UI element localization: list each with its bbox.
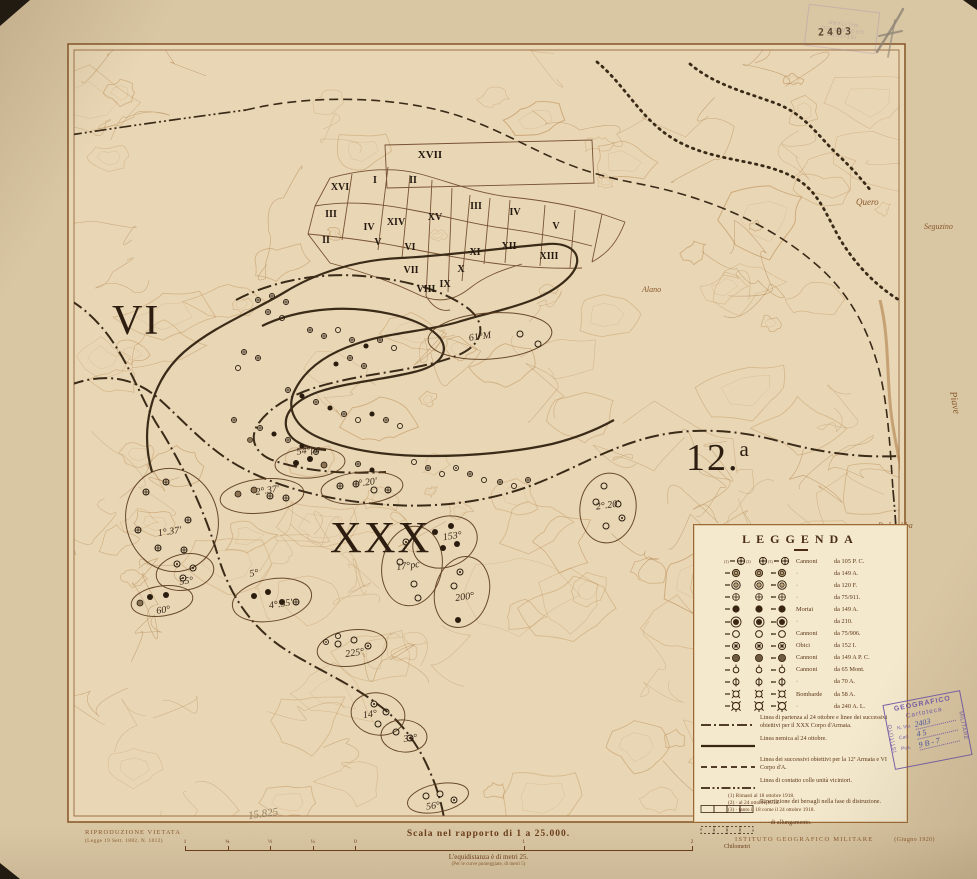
scale-tick [524,846,525,851]
battery-symbol-f [454,541,460,547]
sector-numeral: VIII [417,284,436,295]
battery-symbol-c [257,425,262,430]
battery-symbol-c [307,327,312,332]
weapon-name: Cannoni [796,558,834,565]
legend-symbol-bar [770,676,790,688]
battery-symbol-c [143,489,149,495]
legend-symbol-star [770,640,790,652]
scale-tick-label: 1 [522,839,525,845]
battery-symbol-g [247,437,252,442]
battery-symbol-c [347,355,352,360]
weapon-name: · [796,618,834,625]
legend-symbol-gray [724,652,744,664]
weapon-caliber: da 75/906. [834,630,861,637]
equidistance-note: L'equidistanza è di metri 25. [0,853,977,861]
scale-tick [692,846,693,851]
legend-symbol-open [724,628,744,640]
sector-numeral: IV [363,222,375,233]
battery-symbol-c [383,417,388,422]
battery-symbol-c [283,495,289,501]
sector-numeral: II [409,175,417,186]
legend-symbol-row: ·da 210. [694,615,907,627]
battery-symbol-c [337,483,343,489]
scale-tick [313,846,314,851]
legend-symbol-row: Cannonida 149 A P. C. [694,652,907,664]
map-sheet: 1°.37'55°60°4°.55'5°2°.37'54°pc1°.20'17°… [0,0,977,879]
battery-symbol-c [313,449,318,454]
legend-symbol-row: Mortaida 149 A. [694,603,907,615]
legend-footnote: (2) · al 24 ottobre 1918. [728,800,815,807]
legend-symbol-star [747,640,767,652]
place-name: Quero [856,197,879,207]
battery-symbol-f [369,411,374,416]
place-name: Alano [641,285,661,294]
legend-footnotes: (1) Rimasti al 18 ottobre 1918.(2) · al … [728,793,815,814]
weapon-caliber: da 70 A. [834,678,855,685]
legend-symbol-filledring [724,616,744,628]
equidistance-subnote: (Per le curve punteggiate, di metri 5) [0,862,977,867]
scan-corner-shadow [963,0,977,10]
weapon-name: · [796,703,834,710]
battery-symbol-f [147,594,153,600]
battery-symbol-c [269,293,274,298]
scan-corner-shadow [0,863,20,879]
sector-numeral: XV [428,212,443,223]
weapon-name: Mortai [796,606,834,613]
legend-symbol-filledring [747,616,767,628]
group-label: 56° [425,800,440,813]
weapon-name: · [796,582,834,589]
battery-symbol-f [363,343,368,348]
battery-symbol-c [155,545,161,551]
group-label: 60° [156,604,171,617]
legend-symbol-row: ·da 240 A. L. [694,700,907,712]
sector-numeral: XIV [387,217,406,228]
battery-symbol-c [265,309,270,314]
corps-label: XXX [330,513,431,562]
corps-label: VI [112,298,160,344]
publisher-name: ISTITUTO GEOGRAFICO MILITARE [735,836,873,843]
battery-symbol-c [285,387,290,392]
battery-symbol-f [163,592,169,598]
sector-numeral: XVI [331,182,349,193]
battery-symbol-c [241,349,246,354]
battery-symbol-c [255,355,260,360]
legend-symbol-filled [747,603,767,615]
legend-symbol-row: Cannonida 75/906. [694,628,907,640]
legend-line-rows: Linea di partenza al 24 ottobre e linee … [700,715,900,841]
legend-symbol-filled [724,603,744,615]
battery-symbol-f [369,467,374,472]
battery-symbol-c [377,337,382,342]
legend-symbol-shaded [770,567,790,579]
battery-symbol-g [235,491,241,497]
legend-symbol-bomblg [724,700,744,712]
legend-symbol-mont [770,664,790,676]
legend-footnote: (1) Rimasti al 18 ottobre 1918. [728,793,815,800]
weapon-name: · [796,678,834,685]
group-label: 5° [249,568,259,580]
battery-symbol-c [349,337,354,342]
scale-tick-label: ¾ [226,839,230,845]
legend-symbol-row: ·da 70 A. [694,676,907,688]
battery-symbol-c [231,417,236,422]
group-label: 14° [362,708,377,721]
legend-line-description: Linea nemica al 24 ottobre. [760,736,827,744]
legend-line-sample-solid [700,741,756,751]
inventory-number-stamp: 2403 [818,26,854,38]
legend-symbol-star [724,640,744,652]
weapon-caliber: da 75/911. [834,594,860,601]
legend-symbol-shaded [724,567,744,579]
legend-footnote: (3) · tanto il 18 come il 24 ottobre 191… [728,807,815,814]
battery-symbol-f [327,405,332,410]
weapon-caliber: da 149 A. [834,606,858,613]
legend-line-row: Linea nemica al 24 ottobre. [700,736,900,756]
place-name: Piave [947,390,962,416]
sector-numeral: XVII [418,149,442,161]
legend-symbol-row: Cannonida 65 Mont. [694,664,907,676]
scale-tick [185,846,186,851]
scale-tick-label: 2 [691,839,694,845]
battery-symbol-c [355,461,360,466]
legend-line-sample-dashdot [700,720,756,730]
battery-symbol-f [432,529,438,535]
sector-numeral: IX [439,279,451,290]
legend-line-sample-dashed [700,762,756,772]
sector-numeral: V [374,237,382,248]
group-label: 31° [402,732,418,745]
legend-symbol-cross105 [773,555,790,567]
sector-numeral: V [552,221,560,232]
scale-tick-label: 0 [354,839,357,845]
battery-symbol-f [299,443,304,448]
weapon-name: Cannoni [796,654,834,661]
weapon-caliber: da 149 A. [834,570,858,577]
weapon-name: Bombarde [796,691,834,698]
legend-title: LEGGENDA [694,532,907,547]
battery-symbol-c [497,479,502,484]
battery-symbol-f [299,393,304,398]
legend-line-row: Linea di partenza al 24 ottobre e linee … [700,715,900,735]
legend-symbol-bomblg [747,700,767,712]
scale-unit-label: Chilometri [724,844,750,850]
legend-line-description: Linea dei successivi obiettivi per la 12… [760,757,900,772]
scale-tick [270,846,271,851]
battery-symbol-f [271,431,276,436]
legend-symbol-row: ·da 120 F. [694,579,907,591]
battery-symbol-c [135,527,141,533]
battery-symbol-c [341,411,346,416]
scale-bar-line [185,850,692,851]
legend-symbol-plus [724,591,744,603]
battery-symbol-f [251,593,257,599]
battery-symbol-f [440,545,446,551]
scale-tick [355,846,356,851]
weapon-caliber: da 65 Mont. [834,666,865,673]
weapon-name: Cannoni [796,630,834,637]
battery-symbol-f [333,361,338,366]
battery-symbol-c [181,547,187,553]
battery-symbol-f [448,523,454,529]
sector-numeral: XII [501,241,516,252]
legend-symbol-plus [770,591,790,603]
battery-symbol-c [361,363,366,368]
publisher-imprint: ISTITUTO GEOGRAFICO MILITARE (Giugno 192… [735,836,935,843]
publisher-date: (Giugno 1920) [894,837,935,843]
sector-numeral: I [373,175,377,186]
legend-line-description: Linea di contatto colle unità viciniori. [760,778,852,786]
battery-symbol-c [425,465,430,470]
place-name: Seguzino [924,222,953,231]
battery-symbol-c [321,333,326,338]
legend-symbol-gray [770,652,790,664]
legend-symbol-row: ·da 75/911. [694,591,907,603]
scan-corner-shadow [0,0,30,26]
battery-symbol-f [307,456,313,462]
battery-symbol-g [137,600,143,606]
battery-symbol-c [283,299,288,304]
legend-symbol-bomb [747,688,767,700]
sector-numeral: XIII [540,251,559,262]
scale-tick-label: 1 [184,839,187,845]
sector-numeral: VI [404,242,415,253]
weapon-caliber: da 58 A. [834,691,855,698]
legend-symbol-double [747,579,767,591]
legend-symbol-row: ·da 149 A. [694,567,907,579]
weapon-caliber: da 120 F. [834,582,857,589]
battery-symbol-c [285,437,290,442]
legend-line-description: Linea di partenza al 24 ottobre e linee … [760,715,900,730]
legend-line-sample-contact [700,783,756,793]
legend-symbol-open [747,628,767,640]
battery-symbol-c [255,297,260,302]
battery-symbol-c [293,599,299,605]
legend-symbol-bomblg [770,700,790,712]
legend-symbol-mont [747,664,767,676]
sector-numeral: III [470,201,482,212]
battery-symbol-c [525,477,530,482]
legend-symbol-bar [724,676,744,688]
sector-numeral: VII [403,265,418,276]
battery-symbol-f [265,589,271,595]
legend-symbol-bomb [770,688,790,700]
battery-symbol-c [185,517,191,523]
weapon-name: Cannoni [796,666,834,673]
weapon-name: Obici [796,642,834,649]
weapon-caliber: da 210. [834,618,853,625]
legend-symbol-rows: (1)(2)(3)Cannonida 105 P. C.·da 149 A.·d… [694,555,907,712]
battery-symbol-g [321,462,327,468]
sector-numeral: X [457,264,465,275]
sector-numeral: II [322,235,330,246]
weapon-name: · [796,594,834,601]
battery-symbol-f [455,617,461,623]
weapon-caliber: da 105 P. C. [834,558,864,565]
legend-symbol-gray [747,652,767,664]
legend-symbol-row: Obicida 152 I. [694,640,907,652]
legend-symbol-cross105 [751,555,768,567]
group-label: 55° [179,575,194,588]
legend-symbol-plus [747,591,767,603]
artillery-group: 5° [249,568,259,580]
battery-symbol-f [293,460,299,466]
legend-symbol-open [770,628,790,640]
legend-symbol-row: (1)(2)(3)Cannonida 105 P. C. [694,555,907,567]
weapon-caliber: da 240 A. L. [834,703,865,710]
legend-line-row: Linea dei successivi obiettivi per la 12… [700,757,900,777]
legend-title-underline [794,549,808,551]
legend-symbol-shaded [747,567,767,579]
scale-tick-label: ¼ [311,839,315,845]
sector-numeral: IV [509,207,521,218]
stamp-field-label: Pos. [901,743,920,752]
legend-line-description: · · · di allungamento. [760,820,812,828]
sector-numeral: III [325,209,337,220]
scale-tick-label: ½ [268,839,272,845]
legend-symbol-bomb [724,688,744,700]
battery-symbol-c [385,487,391,493]
scale-tick [228,846,229,851]
legend-symbol-filled [770,603,790,615]
legend-symbol-mont [724,664,744,676]
legend-panel: LEGGENDA (1)(2)(3)Cannonida 105 P. C.·da… [693,524,908,823]
sector-numeral: XI [469,247,480,258]
weapon-caliber: da 149 A P. C. [834,654,870,661]
battery-symbol-c [163,479,169,485]
battery-symbol-c [313,399,318,404]
weapon-caliber: da 152 I. [834,642,856,649]
weapon-name: · [796,570,834,577]
legend-symbol-double [770,579,790,591]
legend-symbol-double [724,579,744,591]
legend-symbol-row: Bombardeda 58 A. [694,688,907,700]
legend-symbol-bar [747,676,767,688]
legend-symbol-cross105 [729,555,746,567]
legend-symbol-filledring [770,616,790,628]
battery-symbol-c [467,471,472,476]
